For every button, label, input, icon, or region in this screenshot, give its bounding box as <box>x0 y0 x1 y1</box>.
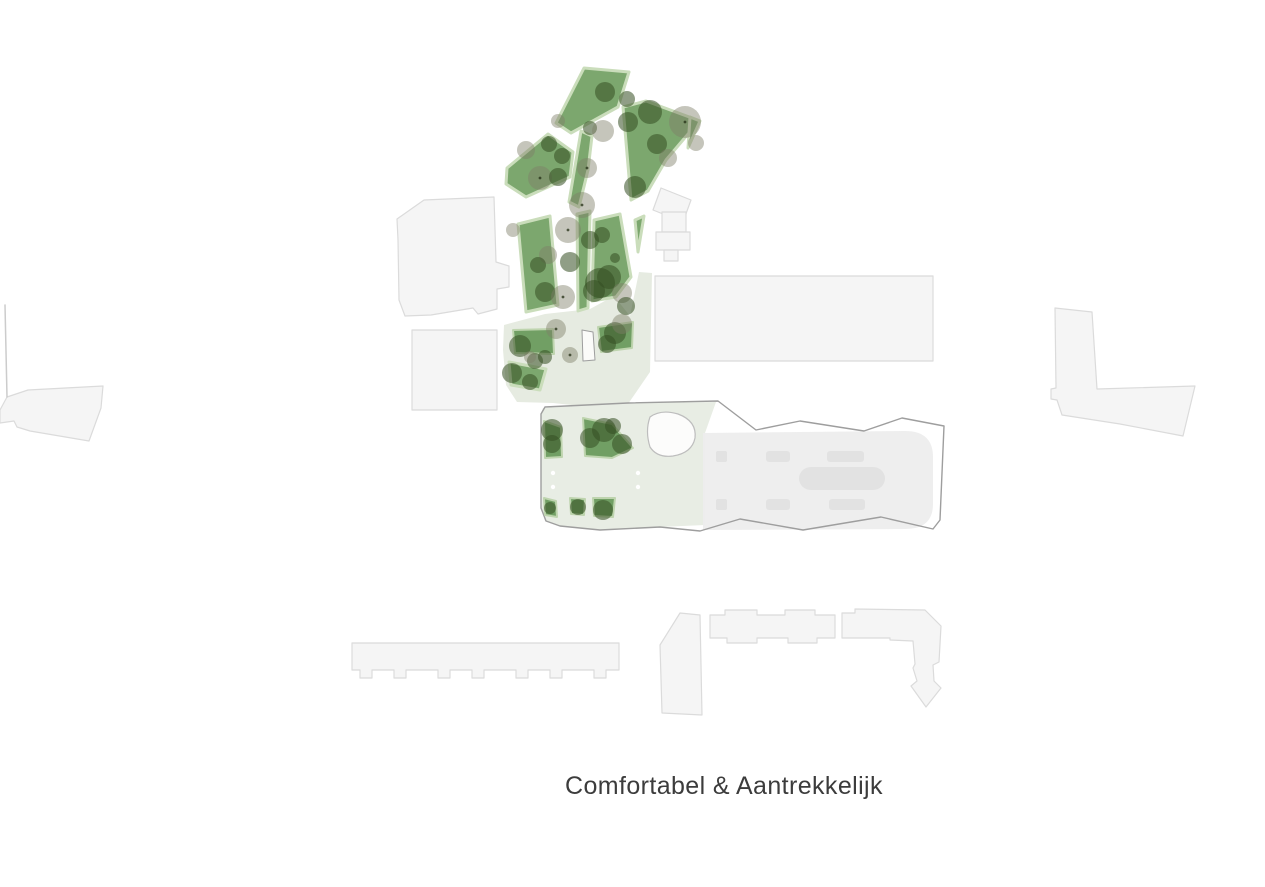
tree-canopy <box>502 363 522 383</box>
roof-detail-pill <box>799 467 885 490</box>
tree-canopy <box>517 141 535 159</box>
tree-canopy <box>659 149 677 167</box>
tree-canopy <box>638 100 662 124</box>
tree-canopy <box>598 335 616 353</box>
roof-detail <box>766 499 790 510</box>
building-bottom-vertical <box>660 613 702 715</box>
site-plan-page: Comfortabel & Aantrekkelijk <box>0 0 1265 887</box>
site-plan-drawing <box>0 0 1265 887</box>
building-upper-left-2 <box>412 330 497 410</box>
tree-canopy <box>605 418 621 434</box>
tree-canopy <box>624 176 646 198</box>
park-polygon <box>635 216 644 252</box>
tree-canopy <box>530 257 546 273</box>
tree-trunk-dot <box>586 167 589 170</box>
tree-trunk-dot <box>567 229 570 232</box>
tree-trunk-dot <box>581 204 584 207</box>
building-upper-left <box>397 197 509 316</box>
plan-caption: Comfortabel & Aantrekkelijk <box>565 772 883 801</box>
tree-canopy <box>549 168 567 186</box>
building-small-c <box>664 250 678 261</box>
path-marker-dot <box>636 471 640 475</box>
building-small-b <box>656 232 690 250</box>
building-right-l <box>1051 308 1195 436</box>
tree-canopy <box>619 91 635 107</box>
tree-trunk-dot <box>569 354 572 357</box>
tree-trunk-dot <box>562 296 565 299</box>
tree-canopy <box>522 374 538 390</box>
tree-canopy <box>570 499 586 515</box>
tree-canopy <box>506 223 520 237</box>
path-marker-dot <box>551 485 555 489</box>
tree-canopy <box>595 82 615 102</box>
tree-canopy <box>551 114 565 128</box>
tree-trunk-dot <box>684 121 687 124</box>
roof-detail <box>766 451 790 462</box>
tree-canopy <box>617 297 635 315</box>
tree-canopy <box>524 351 536 363</box>
tree-canopy <box>612 434 632 454</box>
tree-canopy <box>610 253 620 263</box>
building-bottom-horizontal <box>710 610 835 643</box>
tree-canopy <box>544 502 556 514</box>
building-bottom-long <box>352 643 619 678</box>
tree-canopy <box>594 227 610 243</box>
plaza-pad <box>582 330 595 361</box>
tree-canopy <box>560 252 580 272</box>
tree-canopy <box>593 500 613 520</box>
building-big-rect <box>655 276 933 361</box>
tree-canopy <box>592 120 614 142</box>
tree-trunk-dot <box>539 177 542 180</box>
boundary-line <box>5 305 7 397</box>
roof-detail <box>827 451 864 462</box>
building-left-wedge <box>0 386 103 441</box>
tree-trunk-dot <box>555 328 558 331</box>
tree-canopy <box>543 435 561 453</box>
roof-detail <box>829 499 865 510</box>
path-marker-dot <box>636 485 640 489</box>
tree-canopy <box>538 350 552 364</box>
tree-canopy <box>688 135 704 151</box>
roof-detail <box>716 499 727 510</box>
tree-canopy <box>541 136 557 152</box>
building-small-a <box>662 212 686 232</box>
tree-canopy <box>618 112 638 132</box>
tree-canopy <box>554 148 570 164</box>
tree-canopy <box>583 280 605 302</box>
building-bottom-l-arrow <box>842 609 941 707</box>
roof-detail <box>716 451 727 462</box>
path-marker-dot <box>551 471 555 475</box>
tree-canopy <box>612 314 632 334</box>
